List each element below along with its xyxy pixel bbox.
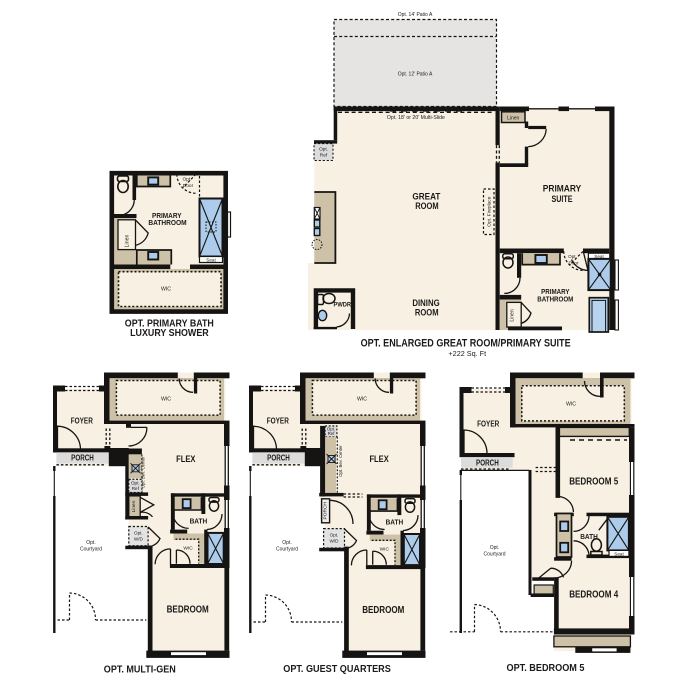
svg-text:Opt.: Opt. xyxy=(131,481,140,486)
svg-text:FLEX: FLEX xyxy=(176,454,196,465)
svg-text:Opt. 18' or 20' Multi-Slide: Opt. 18' or 20' Multi-Slide xyxy=(387,115,445,121)
svg-text:BATH: BATH xyxy=(190,519,208,526)
svg-text:Opt.: Opt. xyxy=(86,540,95,546)
svg-text:Opt.: Opt. xyxy=(134,531,143,536)
svg-text:W/D: W/D xyxy=(330,539,340,544)
svg-text:Opt.: Opt. xyxy=(490,545,499,551)
svg-text:BEDROOM: BEDROOM xyxy=(167,605,209,616)
svg-text:BEDROOM 4: BEDROOM 4 xyxy=(569,590,618,601)
svg-text:FOYER: FOYER xyxy=(71,416,93,425)
svg-text:PRIMARY: PRIMARY xyxy=(543,182,582,193)
svg-text:SUITE: SUITE xyxy=(552,193,573,204)
svg-text:WIC: WIC xyxy=(161,397,171,403)
svg-text:Seat: Seat xyxy=(614,551,624,556)
svg-text:WIC: WIC xyxy=(357,397,367,403)
svg-text:Seat: Seat xyxy=(206,257,216,262)
svg-text:Opt.: Opt. xyxy=(182,177,191,183)
svg-text:Linen: Linen xyxy=(507,115,519,121)
svg-text:Courtyard: Courtyard xyxy=(484,552,506,558)
svg-text:BATH: BATH xyxy=(580,534,598,541)
svg-text:WIC: WIC xyxy=(183,546,193,552)
svg-text:Linen: Linen xyxy=(125,235,131,248)
svg-text:PORCH: PORCH xyxy=(267,453,290,462)
svg-text:Opt. Fireplace: Opt. Fireplace xyxy=(487,196,493,226)
svg-text:W/D: W/D xyxy=(134,537,144,542)
svg-text:Ref: Ref xyxy=(320,153,328,159)
svg-text:Opt.: Opt. xyxy=(319,147,328,153)
svg-text:Linen: Linen xyxy=(510,309,516,321)
svg-text:ROOM: ROOM xyxy=(415,306,439,317)
svg-text:PORCH: PORCH xyxy=(323,502,329,520)
svg-text:+222 Sq. Ft: +222 Sq. Ft xyxy=(448,351,486,358)
svg-text:FLEX: FLEX xyxy=(369,454,389,465)
svg-text:Ref: Ref xyxy=(328,431,336,436)
svg-text:OPT. BEDROOM 5: OPT. BEDROOM 5 xyxy=(507,662,585,674)
svg-text:Opt. 14' Patio A: Opt. 14' Patio A xyxy=(398,12,433,18)
svg-text:WIC: WIC xyxy=(380,547,390,553)
svg-text:Opt. 12' Patio A: Opt. 12' Patio A xyxy=(398,72,433,78)
svg-text:FOYER: FOYER xyxy=(267,416,289,425)
svg-text:BATHROOM: BATHROOM xyxy=(148,218,186,227)
svg-text:BEDROOM: BEDROOM xyxy=(362,605,404,616)
svg-text:OPT. ENLARGED GREAT ROOM/PRIMA: OPT. ENLARGED GREAT ROOM/PRIMARY SUITE xyxy=(361,337,571,349)
svg-text:BATHROOM: BATHROOM xyxy=(537,295,573,304)
svg-text:FOYER: FOYER xyxy=(477,420,499,429)
svg-text:PORCH: PORCH xyxy=(476,458,499,467)
svg-text:PWDR: PWDR xyxy=(334,301,352,308)
svg-text:PORCH: PORCH xyxy=(71,453,94,462)
svg-text:WIC: WIC xyxy=(566,402,576,408)
svg-text:BATH: BATH xyxy=(386,520,404,527)
svg-text:WIC: WIC xyxy=(161,287,171,293)
svg-text:Courtyard: Courtyard xyxy=(80,546,102,552)
svg-text:Courtyard: Courtyard xyxy=(276,546,298,552)
svg-text:BEDROOM 5: BEDROOM 5 xyxy=(569,477,618,488)
svg-text:Ref: Ref xyxy=(132,486,140,491)
svg-text:Door: Door xyxy=(183,183,194,189)
svg-text:Opt.: Opt. xyxy=(282,540,291,546)
svg-text:Linen: Linen xyxy=(131,500,137,512)
svg-text:Opt.: Opt. xyxy=(568,254,577,259)
svg-text:OPT. GUEST QUARTERS: OPT. GUEST QUARTERS xyxy=(283,663,391,675)
svg-text:Opt. Bev. Center: Opt. Bev. Center xyxy=(338,445,343,477)
svg-text:OPT. MULTI-GEN: OPT. MULTI-GEN xyxy=(104,664,176,676)
svg-text:ROOM: ROOM xyxy=(415,200,439,211)
svg-text:LUXURY SHOWER: LUXURY SHOWER xyxy=(130,328,209,339)
svg-text:Opt.: Opt. xyxy=(330,533,339,538)
